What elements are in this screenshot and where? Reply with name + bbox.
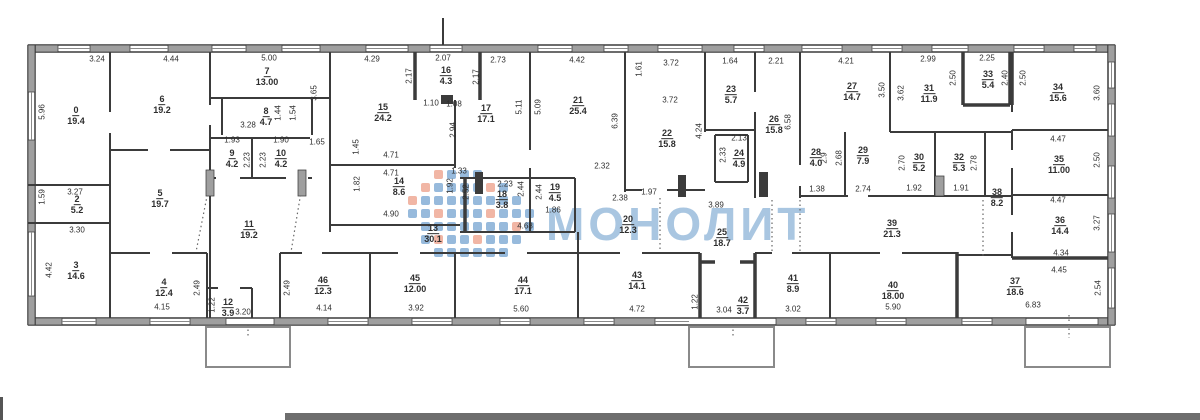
- room-area: 11.9: [920, 95, 937, 105]
- room-label: 4417.1: [514, 275, 532, 297]
- dimension-label: 4.24: [695, 123, 704, 139]
- room-label: 3511.00: [1048, 154, 1070, 176]
- room-number: 39: [886, 218, 898, 229]
- dimension-label: 2.21: [768, 57, 784, 66]
- dimension-label: 2.99: [920, 55, 936, 64]
- dimension-label: 1.92: [906, 184, 922, 193]
- dimension-label: 2.23: [497, 180, 513, 189]
- dimension-label: 3.02: [785, 305, 801, 314]
- room-area: 5.3: [953, 164, 966, 174]
- room-label: 1717.1: [477, 103, 495, 125]
- dimension-label: 2.70: [898, 155, 907, 171]
- room-label: 619.2: [153, 94, 171, 116]
- room-area: 4.5: [549, 194, 562, 204]
- dimension-label: 2.23: [243, 152, 252, 168]
- room-label: 423.7: [737, 295, 750, 317]
- room-label: 297.9: [857, 145, 870, 167]
- room-label: 4512.00: [404, 273, 427, 295]
- room-area: 4.7: [260, 118, 273, 128]
- room-area: 19.2: [153, 106, 171, 116]
- room-label: 94.2: [226, 148, 239, 170]
- dimension-label: 3.24: [89, 55, 105, 64]
- room-label: 3415.6: [1049, 82, 1067, 104]
- room-area: 12.3: [619, 226, 637, 236]
- room-number: 18: [496, 189, 508, 200]
- room-area: 17.1: [477, 115, 495, 125]
- room-label: 412.4: [155, 277, 173, 299]
- room-number: 8: [262, 106, 269, 117]
- dimension-label: 5.09: [534, 99, 543, 115]
- room-number: 13: [427, 223, 439, 234]
- room-area: 19.7: [151, 200, 169, 210]
- dimension-label: 1.82: [353, 176, 362, 192]
- dimension-label: 1.65: [309, 138, 325, 147]
- dimension-label: 4.29: [364, 55, 380, 64]
- room-number: 20: [622, 214, 634, 225]
- room-area: 5.4: [982, 81, 995, 91]
- dimension-label: 2.50: [949, 70, 958, 86]
- room-number: 12: [222, 297, 234, 308]
- room-number: 9: [228, 148, 235, 159]
- room-label: 123.9: [222, 297, 235, 319]
- dimension-label: 4.21: [838, 57, 854, 66]
- room-area: 21.3: [883, 230, 901, 240]
- room-label: 519.7: [151, 188, 169, 210]
- room-area: 15.6: [1049, 94, 1067, 104]
- room-area: 4.3: [440, 77, 453, 87]
- dimension-label: 2.25: [979, 54, 995, 63]
- room-number: 0: [72, 105, 79, 116]
- dimension-label: 2.23: [259, 152, 268, 168]
- dimension-label: 2.9: [820, 152, 829, 163]
- dimension-label: 3.20: [235, 308, 251, 317]
- dimension-label: 6.83: [1025, 301, 1041, 310]
- room-area: 5.7: [725, 96, 738, 106]
- dimension-label: 4.72: [629, 305, 645, 314]
- room-label: 164.3: [440, 65, 453, 87]
- room-area: 17.1: [514, 287, 532, 297]
- dimension-label: 5.11: [515, 100, 524, 115]
- room-number: 44: [517, 275, 529, 286]
- dimension-label: 1.10: [423, 99, 439, 108]
- room-label: 25.2: [71, 194, 84, 216]
- room-number: 16: [440, 65, 452, 76]
- room-area: 25.4: [569, 107, 587, 117]
- room-number: 41: [787, 273, 799, 284]
- dimension-label: 1.38: [809, 185, 825, 194]
- dimension-label: 3.50: [878, 82, 887, 98]
- dimension-label: 6.39: [611, 113, 620, 129]
- room-label: 2714.7: [843, 81, 861, 103]
- dimension-label: 4.15: [154, 303, 170, 312]
- dimension-label: 4.68: [517, 222, 533, 231]
- room-number: 29: [857, 145, 869, 156]
- dimension-label: 4.14: [316, 304, 332, 313]
- room-number: 36: [1054, 215, 1066, 226]
- room-label: 1119.2: [240, 219, 258, 241]
- room-label: 194.5: [549, 182, 562, 204]
- dimension-label: 2.50: [1093, 152, 1102, 168]
- dimension-label: 2.49: [193, 280, 202, 296]
- room-area: 5.2: [913, 164, 926, 174]
- room-label: 019.4: [67, 105, 85, 127]
- dimension-label: 1.64: [722, 57, 738, 66]
- room-label: 325.3: [953, 152, 966, 174]
- room-label: 2518.7: [713, 227, 731, 249]
- dimension-label: 4.71: [383, 151, 399, 160]
- room-label: 4018.00: [882, 280, 905, 302]
- dimension-label: 1.54: [289, 105, 298, 121]
- dimension-label: 3.92: [408, 304, 424, 313]
- dimension-label: 4.47: [1050, 196, 1066, 205]
- room-area: 3.9: [222, 309, 235, 319]
- room-number: 14: [393, 176, 405, 187]
- room-label: 388.2: [991, 187, 1004, 209]
- room-number: 30: [913, 152, 925, 163]
- room-number: 15: [377, 102, 389, 113]
- dimension-label: 1.08: [446, 100, 462, 109]
- dimension-label: 1.90: [273, 136, 289, 145]
- room-label: 2215.8: [658, 128, 676, 150]
- room-area: 19.4: [67, 117, 85, 127]
- room-area: 14.7: [843, 93, 861, 103]
- room-label: 2615.8: [765, 114, 783, 136]
- dimension-label: 3.27: [67, 188, 83, 197]
- room-number: 34: [1052, 82, 1064, 93]
- room-number: 6: [158, 94, 165, 105]
- room-number: 7: [263, 66, 270, 77]
- dimension-label: 3.60: [1093, 85, 1102, 101]
- dimension-label: 5.90: [885, 303, 901, 312]
- dimension-label: 4.44: [163, 55, 179, 64]
- dimension-label: 3.28: [240, 121, 256, 130]
- room-label: 84.7: [260, 106, 273, 128]
- dimension-label: 2.74: [855, 185, 871, 194]
- room-label: 335.4: [982, 69, 995, 91]
- room-label: 244.9: [733, 148, 746, 170]
- room-area: 18.7: [713, 239, 731, 249]
- labels-layer: 019.4619.2713.0084.794.2104.225.2519.731…: [0, 0, 1200, 420]
- dimension-label: 4.71: [383, 169, 399, 178]
- room-label: 2012.3: [619, 214, 637, 236]
- dimension-label: 1.45: [352, 139, 361, 155]
- room-number: 40: [887, 280, 899, 291]
- room-number: 27: [846, 81, 858, 92]
- dimension-label: 2.33: [719, 147, 728, 163]
- room-label: 235.7: [725, 84, 738, 106]
- dimension-label: 1.59: [38, 189, 47, 205]
- room-area: 14.6: [67, 272, 85, 282]
- room-label: 148.6: [393, 176, 406, 198]
- room-label: 4612.3: [314, 275, 332, 297]
- room-area: 15.8: [765, 126, 783, 136]
- dimension-label: 1.22: [208, 297, 217, 313]
- dimension-label: 2.49: [283, 280, 292, 296]
- room-area: 4.2: [226, 160, 239, 170]
- dimension-label: 2.13: [731, 134, 747, 143]
- floor-plan: МОНОЛИТ 019.4619.2713.0084.794.2104.225.…: [0, 0, 1200, 420]
- room-number: 43: [631, 270, 643, 281]
- dimension-label: 2.38: [612, 194, 628, 203]
- room-label: 104.2: [275, 148, 288, 170]
- room-number: 23: [725, 84, 737, 95]
- room-label: 3614.4: [1051, 215, 1069, 237]
- dimension-label: 5.00: [261, 54, 277, 63]
- room-area: 30.1: [424, 235, 442, 245]
- room-label: 418.9: [787, 273, 800, 295]
- room-area: 19.2: [240, 231, 258, 241]
- dimension-label: 2.54: [1094, 280, 1103, 296]
- room-number: 10: [275, 148, 287, 159]
- room-number: 4: [160, 277, 167, 288]
- dimension-label: 1.22: [691, 294, 700, 310]
- dimension-label: 1.91: [953, 184, 969, 193]
- room-number: 37: [1009, 276, 1021, 287]
- room-area: 4.9: [733, 160, 746, 170]
- room-label: 3111.9: [920, 83, 937, 105]
- dimension-label: 3.27: [1093, 215, 1102, 231]
- room-area: 4.2: [275, 160, 288, 170]
- room-area: 14.4: [1051, 227, 1069, 237]
- room-area: 18.00: [882, 292, 905, 302]
- room-number: 11: [243, 219, 255, 230]
- room-area: 12.3: [314, 287, 332, 297]
- room-label: 713.00: [256, 66, 279, 88]
- room-area: 12.00: [404, 285, 427, 295]
- room-label: 1524.2: [374, 102, 392, 124]
- room-number: 35: [1053, 154, 1065, 165]
- room-area: 8.2: [991, 199, 1004, 209]
- room-label: 305.2: [913, 152, 926, 174]
- room-number: 25: [716, 227, 728, 238]
- room-label: 3921.3: [883, 218, 901, 240]
- room-label: 183.8: [496, 189, 509, 211]
- dimension-label: 3.72: [662, 96, 678, 105]
- dimension-label: 2.17: [405, 68, 414, 84]
- dimension-label: 6.58: [784, 114, 793, 130]
- room-label: 4314.1: [628, 270, 646, 292]
- room-number: 5: [156, 188, 163, 199]
- dimension-label: 2.17: [472, 69, 481, 85]
- room-number: 17: [480, 103, 492, 114]
- dimension-label: 1.86: [545, 206, 561, 215]
- dimension-label: 2.68: [835, 150, 844, 166]
- dimension-label: 3.62: [897, 85, 906, 101]
- dimension-label: 4.45: [1051, 266, 1067, 275]
- room-area: 13.00: [256, 78, 279, 88]
- dimension-label: 3.04: [716, 306, 732, 315]
- dimension-label: 1.92: [446, 178, 455, 194]
- room-number: 26: [768, 114, 780, 125]
- room-label: 314.6: [67, 260, 85, 282]
- room-area: 8.9: [787, 285, 800, 295]
- room-number: 45: [409, 273, 421, 284]
- dimension-label: 4.47: [1050, 135, 1066, 144]
- room-number: 46: [317, 275, 329, 286]
- room-number: 3: [72, 260, 79, 271]
- room-number: 42: [737, 295, 749, 306]
- room-area: 7.9: [857, 157, 870, 167]
- dimension-label: 1.97: [641, 188, 657, 197]
- room-area: 3.7: [737, 307, 750, 317]
- dimension-label: 2.52: [462, 184, 471, 200]
- dimension-label: 1.44: [274, 105, 283, 121]
- room-number: 32: [953, 152, 965, 163]
- dimension-label: 1.93: [224, 136, 240, 145]
- room-number: 19: [549, 182, 561, 193]
- dimension-label: 1.33: [451, 167, 467, 176]
- room-label: 3718.6: [1006, 276, 1024, 298]
- dimension-label: 1.61: [635, 61, 644, 77]
- dimension-label: 4.42: [569, 56, 585, 65]
- dimension-label: 2.94: [449, 122, 458, 138]
- dimension-label: 5.96: [38, 104, 47, 120]
- dimension-label: 3.65: [310, 85, 319, 101]
- dimension-label: 5.60: [513, 305, 529, 314]
- dimension-label: 4.34: [1053, 249, 1069, 258]
- room-area: 12.4: [155, 289, 173, 299]
- room-number: 22: [661, 128, 673, 139]
- room-area: 18.6: [1006, 288, 1024, 298]
- dimension-label: 4.42: [45, 262, 54, 278]
- room-area: 24.2: [374, 114, 392, 124]
- dimension-label: 2.73: [490, 56, 506, 65]
- room-number: 24: [733, 148, 745, 159]
- room-area: 8.6: [393, 188, 406, 198]
- room-area: 3.8: [496, 201, 509, 211]
- room-label: 2125.4: [569, 95, 587, 117]
- dimension-label: 2.44: [535, 184, 544, 200]
- room-area: 14.1: [628, 282, 646, 292]
- room-label: 1330.1: [424, 223, 442, 245]
- dimension-label: 3.30: [69, 226, 85, 235]
- dimension-label: 2.32: [594, 162, 610, 171]
- dimension-label: 2.50: [1019, 70, 1028, 86]
- dimension-label: 2.78: [970, 155, 979, 171]
- room-area: 11.00: [1048, 166, 1070, 176]
- dimension-label: 3.72: [663, 59, 679, 68]
- room-area: 5.2: [71, 206, 84, 216]
- dimension-label: 3.89: [708, 201, 724, 210]
- dimension-label: 2.44: [517, 181, 526, 197]
- room-area: 15.8: [658, 140, 676, 150]
- room-number: 33: [982, 69, 994, 80]
- room-number: 31: [923, 83, 935, 94]
- dimension-label: 2.07: [435, 54, 451, 63]
- room-number: 38: [991, 187, 1003, 198]
- dimension-label: 4.90: [383, 210, 399, 219]
- room-number: 21: [572, 95, 584, 106]
- dimension-label: 2.40: [1001, 70, 1010, 86]
